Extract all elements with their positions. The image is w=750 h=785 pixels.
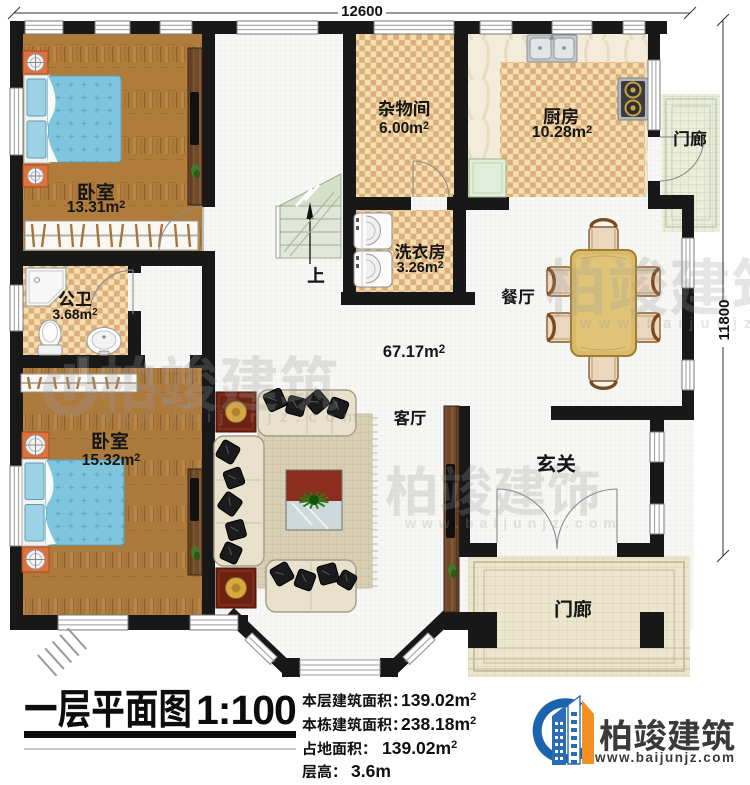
svg-text:10.28m2: 10.28m2 [532, 124, 593, 141]
svg-text:3.26m2: 3.26m2 [397, 260, 444, 276]
svg-text:www.baijunjz.com: www.baijunjz.com [98, 409, 365, 426]
svg-text:3.6m: 3.6m [351, 761, 391, 780]
svg-text:238.18m2: 238.18m2 [401, 714, 476, 734]
svg-text:139.02m2: 139.02m2 [382, 738, 457, 758]
svg-text:12600: 12600 [341, 3, 383, 20]
svg-text:www.baijunjz.com: www.baijunjz.com [404, 515, 622, 531]
svg-text:15.32m2: 15.32m2 [82, 452, 141, 469]
svg-text:6.00m2: 6.00m2 [379, 120, 429, 137]
svg-text:11800: 11800 [716, 300, 733, 341]
svg-text:67.17m2: 67.17m2 [383, 343, 445, 361]
svg-text:1:100: 1:100 [196, 687, 296, 733]
svg-text:13.31m2: 13.31m2 [67, 199, 126, 216]
svg-text:139.02m2: 139.02m2 [401, 690, 476, 710]
svg-text:3.68m2: 3.68m2 [52, 306, 98, 322]
svg-text:www.baijunjz.com: www.baijunjz.com [594, 750, 736, 765]
